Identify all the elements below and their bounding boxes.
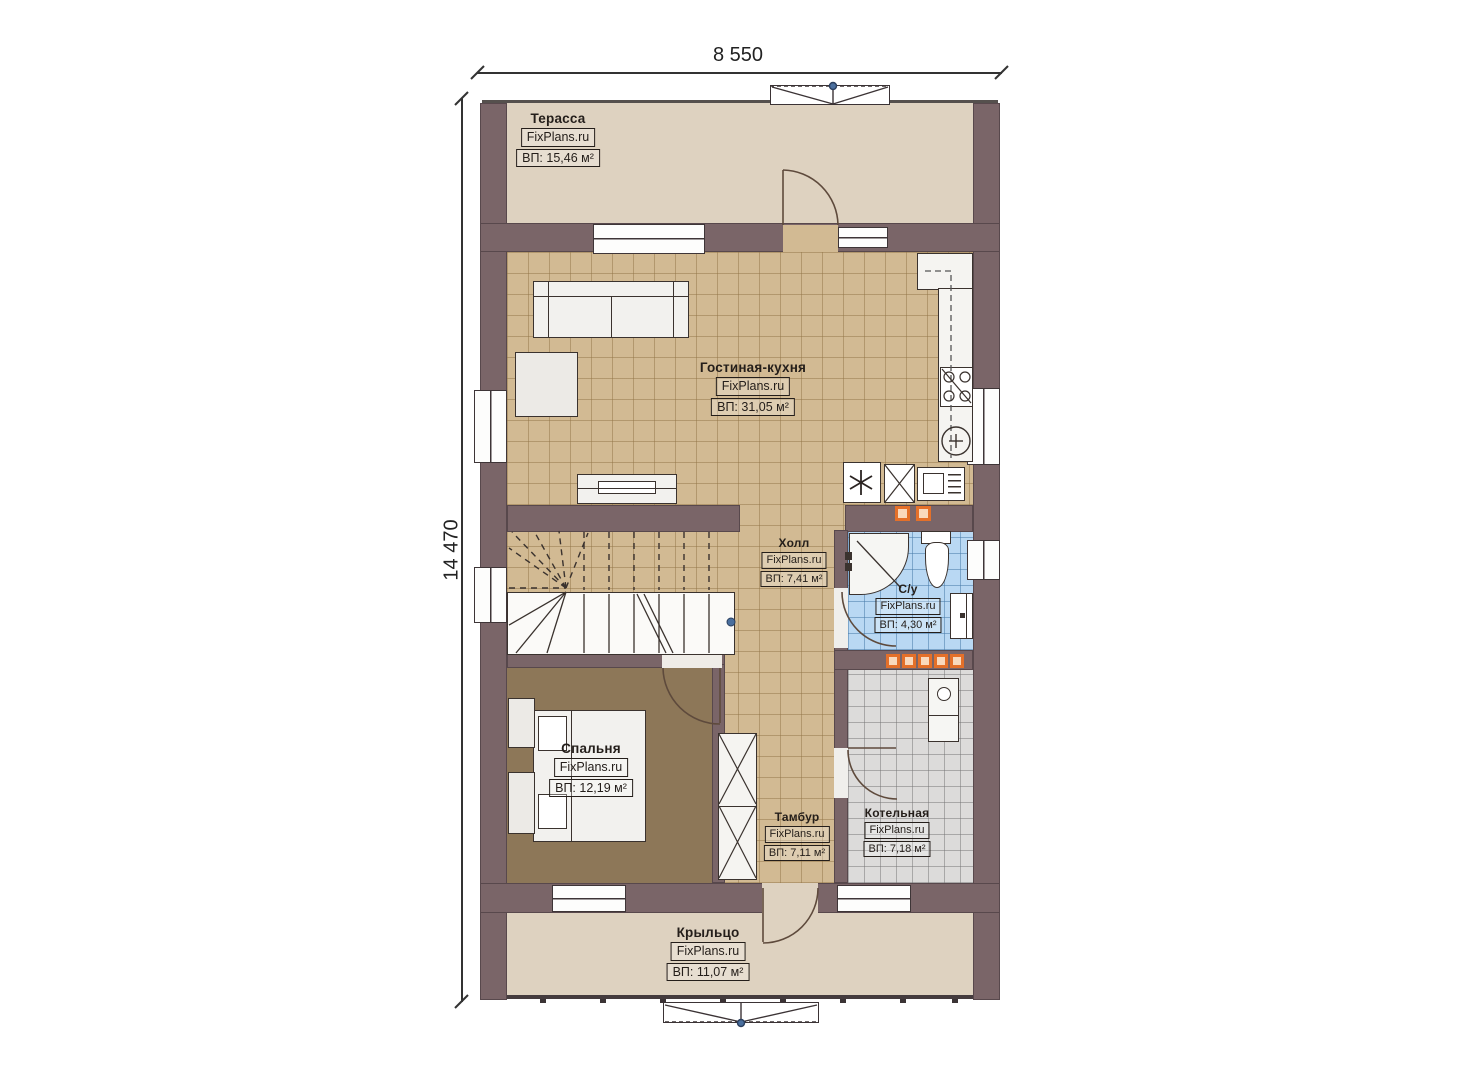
washing-machine-door-line	[966, 594, 967, 638]
room-name: Терасса	[516, 111, 600, 126]
gable-symbol-bottom	[663, 1002, 819, 1023]
window-top-living	[593, 224, 705, 254]
room-label-terrace: Терасса FixPlans.ru ВП: 15,46 м²	[516, 111, 600, 167]
tv-stand	[577, 474, 677, 504]
door-gap-entrance	[762, 883, 818, 913]
room-name: Крыльцо	[667, 925, 750, 940]
boiler-unit	[928, 678, 959, 742]
dimension-width-label: 8 550	[713, 44, 763, 67]
radiator-boiler-2	[902, 654, 916, 668]
wardrobe	[718, 733, 757, 880]
wall-bathroom-boiler-left	[834, 530, 848, 883]
room-label-living-kitchen: Гостиная-кухня FixPlans.ru ВП: 31,05 м²	[700, 360, 806, 416]
tv-stand-line	[578, 488, 676, 489]
stove	[940, 367, 973, 407]
terrace-top-edge	[482, 100, 998, 103]
room-name: Холл	[760, 536, 827, 550]
room-name: С/у	[874, 582, 941, 596]
radiator-boiler-3	[918, 654, 932, 668]
window-left-stairs	[474, 567, 507, 623]
room-name: Гостиная-кухня	[700, 360, 806, 375]
floor-plan: 8 550 14 470	[0, 0, 1473, 1080]
wall-living-hall	[507, 505, 740, 532]
wardrobe-divider	[719, 806, 756, 807]
area-box: ВП: 15,46 м²	[516, 149, 600, 168]
dishwasher	[917, 467, 965, 501]
staircase-lower-flight	[507, 592, 735, 655]
refrigerator-box	[843, 462, 881, 503]
brand-box: FixPlans.ru	[875, 598, 940, 615]
brand-box: FixPlans.ru	[761, 552, 826, 569]
washing-machine	[950, 593, 973, 639]
brand-box: FixPlans.ru	[554, 758, 629, 777]
brand-box: FixPlans.ru	[864, 822, 929, 839]
sofa-armrest-right	[673, 282, 674, 337]
washing-machine-knob	[960, 613, 965, 618]
area-box: ВП: 11,07 м²	[667, 963, 750, 982]
room-name: Тамбур	[764, 810, 830, 824]
kitchen-cabinet-x	[884, 464, 915, 503]
door-gap-terrace	[783, 225, 838, 252]
boiler-dial	[937, 687, 951, 701]
room-name: Котельная	[863, 806, 930, 820]
room-label-bathroom: С/у FixPlans.ru ВП: 4,30 м²	[874, 582, 941, 633]
room-label-boiler: Котельная FixPlans.ru ВП: 7,18 м²	[863, 806, 930, 857]
window-left-living	[474, 390, 507, 463]
brand-box: FixPlans.ru	[716, 377, 791, 396]
boiler-divider	[929, 715, 958, 716]
porch-bottom-edge	[507, 995, 973, 999]
sofa-armrest-left	[548, 282, 549, 337]
radiator-kitchen-2	[916, 506, 931, 521]
dishwasher-door	[923, 473, 944, 494]
room-label-hall: Холл FixPlans.ru ВП: 7,41 м²	[760, 536, 827, 587]
dishwasher-vents	[948, 474, 961, 495]
dimension-line-top	[477, 72, 1002, 74]
window-bottom-bedroom	[552, 885, 626, 912]
area-box: ВП: 31,05 м²	[711, 398, 795, 417]
window-top-kitchen	[838, 227, 888, 248]
area-box: ВП: 7,11 м²	[764, 845, 830, 862]
room-name: Спальня	[549, 741, 633, 756]
pillow-bottom	[538, 794, 567, 829]
brand-box: FixPlans.ru	[521, 128, 596, 147]
dimension-height-label: 14 470	[441, 519, 464, 580]
radiator-boiler-4	[934, 654, 948, 668]
nightstand-top	[508, 698, 535, 748]
kitchen-counter-top	[917, 253, 973, 290]
window-bottom-boiler	[837, 885, 911, 912]
gable-symbol-top	[770, 85, 890, 105]
door-gap-bathroom	[834, 588, 848, 648]
window-right-bathroom	[967, 540, 1000, 580]
door-gap-boiler	[834, 748, 848, 798]
sofa	[533, 281, 689, 338]
radiator-boiler-1	[886, 654, 900, 668]
area-box: ВП: 12,19 м²	[549, 779, 633, 798]
room-label-bedroom: Спальня FixPlans.ru ВП: 12,19 м²	[549, 741, 633, 797]
nightstand-bottom	[508, 772, 535, 834]
brand-box: FixPlans.ru	[671, 942, 746, 961]
room-label-vestibule: Тамбур FixPlans.ru ВП: 7,11 м²	[764, 810, 830, 861]
wall-house-top	[480, 223, 1000, 252]
area-box: ВП: 7,41 м²	[760, 571, 827, 588]
room-label-porch: Крыльцо FixPlans.ru ВП: 11,07 м²	[667, 925, 750, 981]
area-box: ВП: 7,18 м²	[863, 841, 930, 858]
radiator-kitchen-1	[895, 506, 910, 521]
brand-box: FixPlans.ru	[764, 826, 829, 843]
radiator-boiler-5	[950, 654, 964, 668]
area-box: ВП: 4,30 м²	[874, 617, 941, 634]
sofa-seat-divider	[611, 296, 612, 337]
coffee-table	[515, 352, 578, 417]
